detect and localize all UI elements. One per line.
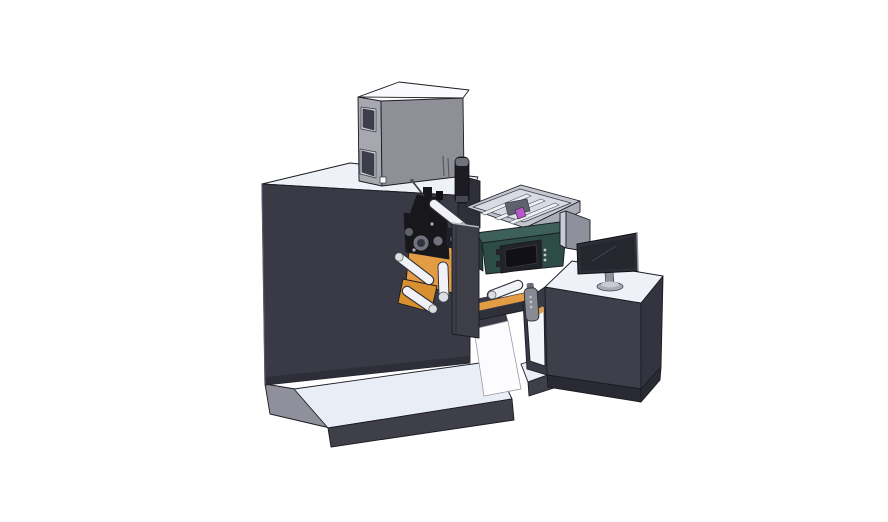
- mech-bolt: [412, 248, 415, 251]
- monitor-bezel-edge: [637, 233, 638, 271]
- cylinder-base: [456, 196, 468, 202]
- mech-bolt: [430, 222, 433, 225]
- divider-edge: [560, 211, 566, 248]
- roller-cap: [395, 253, 403, 261]
- front-door-panel: [452, 223, 479, 338]
- roller-cap: [429, 305, 437, 313]
- mech-rod-head: [410, 179, 414, 183]
- black-cylinder: [455, 157, 469, 203]
- cad-viewport: [0, 0, 888, 522]
- cylinder-cap: [456, 158, 469, 166]
- cad-render-canvas: [0, 0, 888, 522]
- printer-screen-tab: [496, 249, 501, 255]
- desk-front-face: [545, 287, 641, 389]
- cabinet-badge: [380, 177, 386, 183]
- mech-gear-small: [405, 228, 413, 236]
- mech-gear-inner: [417, 239, 425, 247]
- pendant-body: [524, 288, 539, 322]
- printer-button: [544, 259, 547, 262]
- mech-top-block: [436, 191, 443, 200]
- roller-cap: [439, 292, 449, 302]
- cabinet-front-face: [381, 98, 464, 186]
- beam-roller-cap: [488, 291, 496, 299]
- inspection-window-lower: [362, 151, 374, 176]
- mech-top-block: [423, 187, 432, 198]
- mech-gear: [433, 236, 443, 246]
- inspection-window-upper: [363, 109, 374, 130]
- printer-screen-tab: [496, 261, 501, 267]
- monitor-base-top: [601, 282, 619, 288]
- electrical-cabinet: [358, 82, 469, 186]
- printer-button: [544, 249, 547, 252]
- printer-button: [544, 254, 547, 257]
